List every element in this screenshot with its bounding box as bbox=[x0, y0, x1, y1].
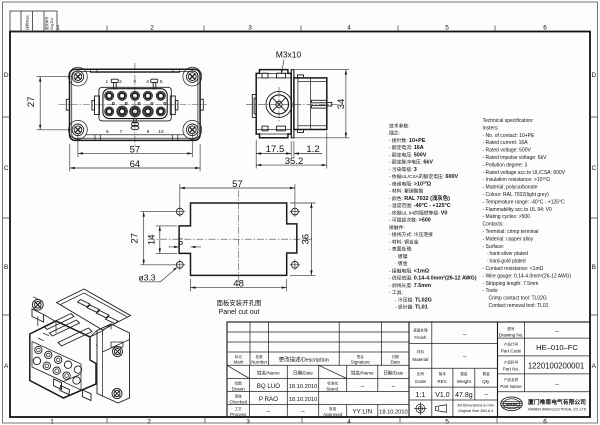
svg-text:10: 10 bbox=[158, 129, 164, 135]
svg-text:日期/Date: 日期/Date bbox=[25, 15, 30, 30]
svg-text:插芯:: 插芯: bbox=[389, 130, 400, 137]
svg-text:Process: Process bbox=[230, 412, 247, 417]
svg-text:1.2: 1.2 bbox=[306, 144, 319, 155]
svg-text:Part Code: Part Code bbox=[501, 348, 522, 353]
svg-text:2: 2 bbox=[147, 419, 151, 425]
svg-text:Date: Date bbox=[390, 360, 400, 365]
svg-text:- Rated impulse voltage: 6kV: - Rated impulse voltage: 6kV bbox=[483, 155, 548, 161]
svg-text:M3x10: M3x10 bbox=[276, 50, 302, 60]
svg-text:Drawn: Drawn bbox=[232, 386, 246, 391]
svg-text:重量: 重量 bbox=[460, 371, 468, 376]
svg-text:57: 57 bbox=[232, 179, 243, 190]
svg-text:A: A bbox=[592, 363, 597, 370]
svg-text:版本: 版本 bbox=[439, 371, 447, 376]
svg-text:- Colour: RAL 7032(light grey): - Colour: RAL 7032(light grey) bbox=[483, 192, 550, 198]
svg-text:- 工具:: - 工具: bbox=[389, 290, 403, 296]
svg-text:更改描述/Description: 更改描述/Description bbox=[279, 356, 329, 364]
svg-text:- 依据UL/CSA的额定电压: 600V: - 依据UL/CSA的额定电压: 600V bbox=[389, 173, 459, 180]
svg-text:–: – bbox=[392, 383, 396, 390]
svg-text:–: – bbox=[267, 409, 271, 416]
svg-text:- 表面处理:: - 表面处理: bbox=[389, 246, 412, 253]
svg-text:比例: 比例 bbox=[417, 371, 425, 376]
svg-text:WAIN: WAIN bbox=[506, 402, 519, 407]
svg-text:6: 6 bbox=[543, 25, 547, 32]
svg-text:- Terminal: crimp terminal: - Terminal: crimp terminal bbox=[483, 229, 539, 235]
svg-text:- Wire gauge: 0.14-4.0mm²(26-1: - Wire gauge: 0.14-4.0mm²(26-12 AWG) bbox=[483, 273, 572, 279]
svg-text:图号: 图号 bbox=[507, 326, 515, 331]
svg-text:2: 2 bbox=[150, 25, 154, 32]
svg-text:–: – bbox=[555, 381, 559, 388]
svg-text:B: B bbox=[4, 264, 8, 271]
svg-text:- Contact resistance: <1mΩ: - Contact resistance: <1mΩ bbox=[483, 266, 544, 272]
svg-text:- Pollution degree: 3: - Pollution degree: 3 bbox=[483, 162, 528, 168]
svg-text:审核: 审核 bbox=[235, 394, 243, 399]
svg-text:产品名称: 产品名称 bbox=[504, 377, 519, 382]
svg-text:C: C bbox=[591, 165, 596, 172]
svg-text:9: 9 bbox=[147, 129, 150, 135]
svg-text:Signature: Signature bbox=[351, 360, 371, 365]
svg-text:Weight: Weight bbox=[457, 379, 472, 384]
svg-text:Contacts:: Contacts: bbox=[483, 222, 504, 228]
svg-text:标记: 标记 bbox=[235, 354, 243, 359]
svg-text:- Material: polycarbonate: - Material: polycarbonate bbox=[483, 185, 538, 191]
svg-text:产品料号: 产品料号 bbox=[504, 359, 519, 364]
svg-text:–: – bbox=[463, 331, 467, 338]
svg-text:D: D bbox=[591, 72, 596, 79]
svg-text:64: 64 bbox=[130, 159, 141, 170]
svg-text:P RAO: P RAO bbox=[259, 396, 278, 403]
svg-text:- 污染等级: 3: - 污染等级: 3 bbox=[389, 166, 417, 173]
svg-text:- 线径范围: 0.14-4.0mm²(26-12 AWG): - 线径范围: 0.14-4.0mm²(26-12 AWG) bbox=[389, 275, 477, 282]
svg-text:姓名/Name: 姓名/Name bbox=[257, 369, 280, 376]
svg-text:5: 5 bbox=[160, 79, 163, 85]
svg-text:- 依据UL 94的阻燃等级: V0: - 依据UL 94的阻燃等级: V0 bbox=[389, 209, 447, 216]
svg-text:17.5: 17.5 bbox=[266, 144, 285, 155]
svg-text:18.10.2010: 18.10.2010 bbox=[379, 410, 407, 416]
svg-text:3: 3 bbox=[246, 419, 250, 425]
svg-text:–: – bbox=[361, 383, 365, 390]
svg-text:- 材料: 铜合金: - 材料: 铜合金 bbox=[389, 238, 419, 245]
svg-text:Chg.Doc: Chg.Doc bbox=[50, 17, 54, 30]
svg-text:Material: Material bbox=[412, 357, 428, 362]
svg-text:- 温度范围: -40°C - +125°C: - 温度范围: -40°C - +125°C bbox=[389, 202, 451, 209]
svg-text:35.2: 35.2 bbox=[285, 156, 304, 167]
svg-text:Original Size DIN A 4: Original Size DIN A 4 bbox=[458, 409, 493, 413]
svg-text:4: 4 bbox=[347, 25, 351, 32]
svg-text:- Mating cycles: >500: - Mating cycles: >500 bbox=[483, 214, 531, 220]
svg-text:标准化: 标准化 bbox=[327, 381, 338, 386]
svg-text:- 接线方式: 冷压连接: - 接线方式: 冷压连接 bbox=[389, 231, 433, 238]
svg-text:- Flammability acc.to UL 94: V: - Flammability acc.to UL 94: V0 bbox=[483, 207, 553, 213]
svg-text:Qty.: Qty. bbox=[482, 379, 490, 384]
svg-text:18.10.2010: 18.10.2010 bbox=[289, 384, 317, 390]
svg-text:工艺: 工艺 bbox=[235, 406, 243, 411]
svg-text:- 可插拔次数: >500: - 可插拔次数: >500 bbox=[389, 217, 431, 224]
svg-text:- 额定电压: 500V: - 额定电压: 500V bbox=[389, 151, 427, 158]
svg-text:Number: Number bbox=[251, 360, 268, 365]
svg-text:- Rated voltage acc.to UL/CSA:: - Rated voltage acc.to UL/CSA: 600V bbox=[483, 170, 566, 176]
svg-text:36: 36 bbox=[301, 234, 312, 245]
svg-text:–: – bbox=[301, 409, 305, 416]
svg-text:HE–010–FC: HE–010–FC bbox=[536, 343, 578, 352]
svg-text:日期: 日期 bbox=[392, 354, 400, 359]
svg-text:数量: 数量 bbox=[483, 371, 491, 376]
svg-text:- Stripping length: 7.5mm: - Stripping length: 7.5mm bbox=[483, 281, 539, 287]
svg-text:- Tools:: - Tools: bbox=[483, 288, 499, 294]
svg-text:1:1: 1:1 bbox=[416, 392, 426, 399]
svg-text:表面处理: 表面处理 bbox=[413, 328, 428, 333]
svg-text:Checked: Checked bbox=[229, 399, 247, 404]
svg-text:- 额定电流: 16A: - 额定电流: 16A bbox=[389, 144, 424, 151]
svg-text:· hard-silver plated: · hard-silver plated bbox=[487, 251, 529, 257]
svg-text:5: 5 bbox=[445, 419, 449, 425]
svg-text:Crimp contact tool: TL02G: Crimp contact tool: TL02G bbox=[489, 296, 547, 302]
svg-text:- 接触电阻: <1mΩ: - 接触电阻: <1mΩ bbox=[389, 267, 430, 274]
svg-text:- Material: copper alloy: - Material: copper alloy bbox=[483, 236, 534, 242]
svg-text:Part Name: Part Name bbox=[500, 384, 522, 389]
svg-text:48: 48 bbox=[233, 279, 244, 290]
svg-text:绘图: 绘图 bbox=[235, 381, 243, 386]
svg-text:7: 7 bbox=[120, 129, 123, 135]
svg-text:B: B bbox=[592, 264, 596, 271]
svg-text:BQ LUO: BQ LUO bbox=[257, 383, 281, 390]
svg-text:3: 3 bbox=[133, 79, 136, 85]
svg-text:2: 2 bbox=[119, 79, 122, 85]
svg-text:5: 5 bbox=[178, 237, 183, 248]
svg-text:All Dimensions in mm: All Dimensions in mm bbox=[457, 404, 494, 408]
svg-text:Contact removal tool: TL01: Contact removal tool: TL01 bbox=[489, 303, 549, 309]
svg-text:处数: 处数 bbox=[256, 354, 264, 359]
svg-text:Stand.: Stand. bbox=[326, 386, 339, 391]
svg-text:Scale: Scale bbox=[415, 379, 427, 384]
svg-text:4: 4 bbox=[347, 419, 351, 425]
svg-text:1: 1 bbox=[105, 79, 108, 85]
svg-text:姓名/Name: 姓名/Name bbox=[351, 369, 374, 376]
svg-text:- Rated voltage: 500V: - Rated voltage: 500V bbox=[483, 148, 532, 154]
svg-text:Finish: Finish bbox=[414, 335, 427, 340]
svg-text:- 接针数: 10+PE: - 接针数: 10+PE bbox=[389, 137, 426, 144]
svg-text:- No. of contact: 10+PE: - No. of contact: 10+PE bbox=[483, 133, 535, 139]
svg-text:Insters:: Insters: bbox=[483, 125, 499, 131]
svg-text:–: – bbox=[555, 329, 559, 336]
svg-text:C: C bbox=[4, 165, 9, 172]
svg-text:D: D bbox=[4, 72, 9, 79]
svg-text:签名: 签名 bbox=[357, 354, 365, 359]
svg-text:- Surface:: - Surface: bbox=[483, 244, 505, 250]
svg-text:· hard-gold plated: · hard-gold plated bbox=[487, 259, 526, 265]
svg-text:3: 3 bbox=[248, 25, 252, 32]
svg-text:- Rated current: 16A: - Rated current: 16A bbox=[483, 140, 529, 146]
svg-text:Mark: Mark bbox=[234, 360, 245, 365]
svg-text:Part No.: Part No. bbox=[503, 366, 520, 371]
svg-text:批准: 批准 bbox=[329, 406, 337, 411]
svg-text:V1.0: V1.0 bbox=[435, 392, 450, 399]
svg-text:27: 27 bbox=[26, 97, 37, 108]
svg-text:34: 34 bbox=[336, 99, 347, 110]
svg-text:- 退针器: TL01: - 退针器: TL01 bbox=[395, 304, 428, 311]
svg-text:材料: 材料 bbox=[417, 349, 425, 354]
svg-text:- Temperature range: -40°C - +: - Temperature range: -40°C - +125°C bbox=[483, 199, 566, 205]
svg-text:57: 57 bbox=[130, 144, 141, 155]
svg-text:47.8g: 47.8g bbox=[455, 392, 473, 399]
svg-text:27: 27 bbox=[129, 233, 140, 244]
svg-text:–: – bbox=[463, 354, 467, 361]
svg-text:厦门唯恩电气有限公司: 厦门唯恩电气有限公司 bbox=[528, 398, 586, 406]
svg-text:ø3.3: ø3.3 bbox=[139, 273, 156, 283]
svg-text:14: 14 bbox=[146, 235, 157, 246]
svg-text:- 剥线长度: 7.5mm: - 剥线长度: 7.5mm bbox=[389, 282, 431, 289]
svg-text:Technical specification:: Technical specification: bbox=[483, 118, 534, 124]
svg-text:技术参数:: 技术参数: bbox=[389, 122, 410, 129]
svg-text:1220100200001: 1220100200001 bbox=[528, 361, 584, 370]
svg-text:XIAMEN WAIN ELECTRICAL CO.,LTD: XIAMEN WAIN ELECTRICAL CO.,LTD bbox=[528, 407, 587, 411]
svg-text:YY LIN: YY LIN bbox=[353, 409, 373, 416]
svg-text:6: 6 bbox=[106, 129, 109, 135]
svg-text:Panel cut out: Panel cut out bbox=[219, 309, 260, 316]
svg-text:–: – bbox=[484, 392, 488, 399]
svg-text:产品代号: 产品代号 bbox=[504, 341, 519, 346]
svg-text:Approved: Approved bbox=[323, 412, 343, 417]
svg-text:· 镀金: · 镀金 bbox=[395, 260, 408, 267]
svg-text:- 材料: 聚碳酸酯: - 材料: 聚碳酸酯 bbox=[389, 188, 424, 195]
svg-text:Drawing No.: Drawing No. bbox=[499, 332, 524, 337]
svg-text:- 冷压钳: TL02G: - 冷压钳: TL02G bbox=[395, 296, 432, 303]
svg-text:5: 5 bbox=[445, 25, 449, 32]
svg-text:6: 6 bbox=[543, 419, 547, 425]
svg-text:A: A bbox=[4, 363, 9, 370]
svg-text:1: 1 bbox=[50, 419, 54, 425]
svg-text:18.10.2010: 18.10.2010 bbox=[289, 397, 317, 403]
svg-text:更改单号: 更改单号 bbox=[44, 16, 49, 30]
svg-text:- 额定脉冲电压: 6kV: - 额定脉冲电压: 6kV bbox=[389, 159, 433, 166]
svg-text:面板安装开孔图: 面板安装开孔图 bbox=[217, 298, 262, 307]
svg-text:· 镀镍: · 镀镍 bbox=[395, 253, 408, 260]
svg-text:4: 4 bbox=[146, 79, 149, 85]
svg-text:REV.: REV. bbox=[437, 379, 447, 384]
svg-text:- Insulation resistance: >1010: - Insulation resistance: >1010Ω bbox=[483, 176, 551, 183]
svg-text:接触件:: 接触件: bbox=[389, 224, 405, 231]
